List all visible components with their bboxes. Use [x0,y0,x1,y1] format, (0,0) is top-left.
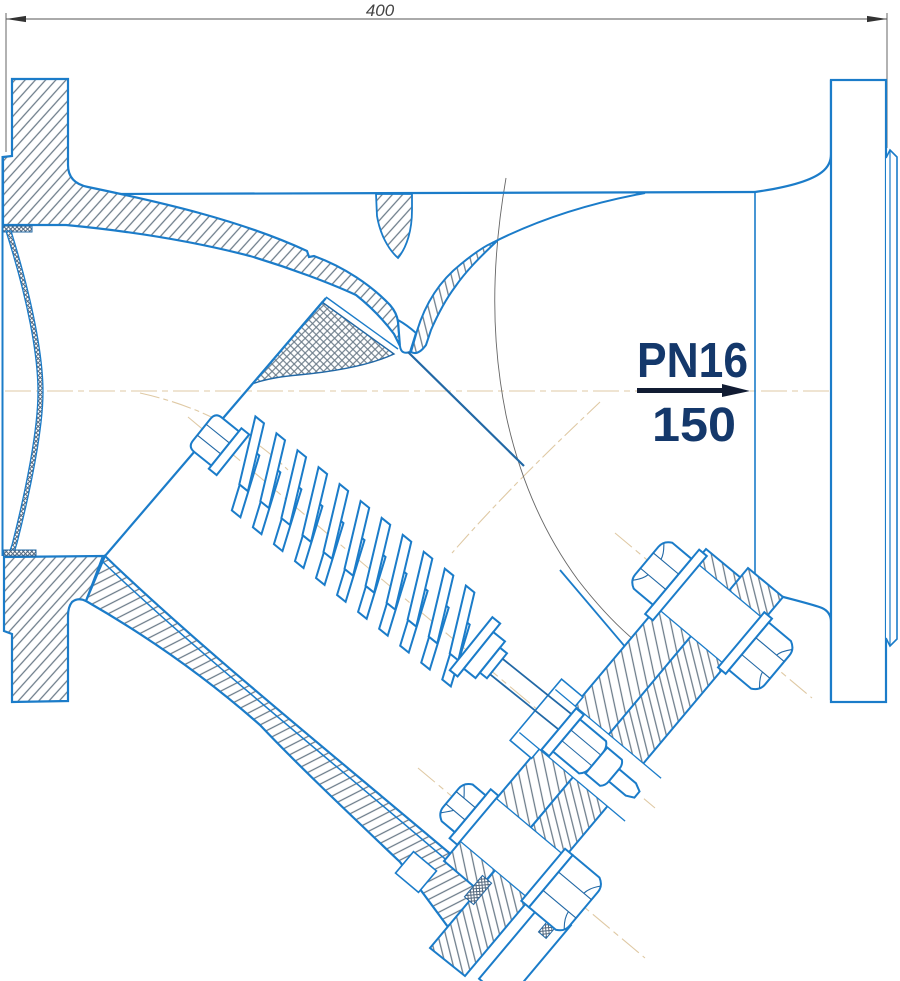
svg-text:400: 400 [366,1,395,20]
svg-text:150: 150 [652,399,736,452]
svg-text:PN16: PN16 [637,334,748,388]
